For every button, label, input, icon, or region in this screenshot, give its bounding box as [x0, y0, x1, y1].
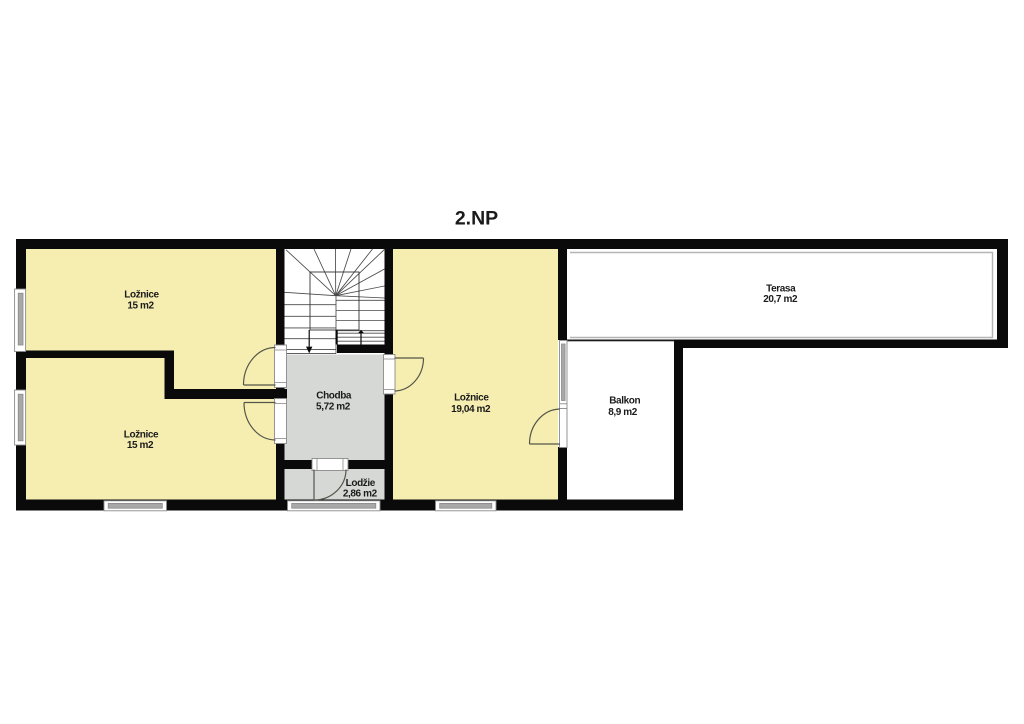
svg-text:15 m2: 15 m2	[127, 300, 154, 311]
svg-text:15 m2: 15 m2	[127, 440, 154, 451]
svg-text:Ložnice: Ložnice	[124, 290, 159, 301]
svg-text:5,72 m2: 5,72 m2	[316, 401, 351, 412]
svg-text:2.NP: 2.NP	[455, 208, 498, 230]
svg-text:Chodba: Chodba	[316, 391, 352, 402]
svg-text:Lodžie: Lodžie	[346, 478, 376, 489]
svg-text:Ložnice: Ložnice	[454, 393, 489, 404]
svg-text:Terasa: Terasa	[766, 284, 796, 295]
svg-text:20,7 m2: 20,7 m2	[763, 294, 798, 305]
svg-text:2,86 m2: 2,86 m2	[343, 488, 378, 499]
svg-text:Balkon: Balkon	[609, 396, 640, 407]
svg-text:8,9 m2: 8,9 m2	[608, 407, 638, 418]
svg-text:Ložnice: Ložnice	[124, 430, 159, 441]
svg-text:19,04 m2: 19,04 m2	[451, 404, 491, 415]
